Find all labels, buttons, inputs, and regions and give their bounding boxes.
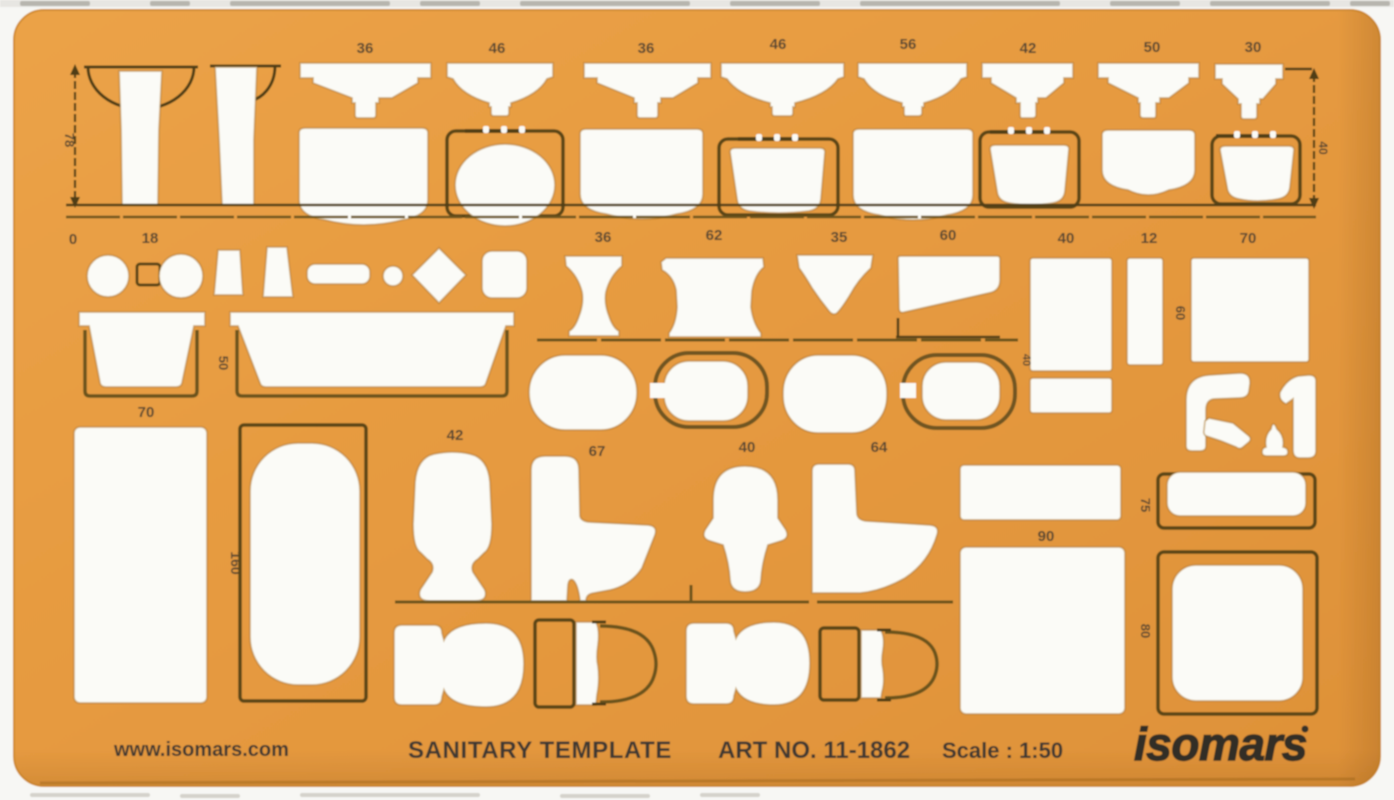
svg-text:www.isomars.com: www.isomars.com [113,739,289,761]
svg-text:62: 62 [706,227,723,244]
svg-text:64: 64 [871,439,888,456]
svg-text:30: 30 [1245,39,1262,56]
svg-text:80: 80 [1138,624,1153,638]
svg-text:46: 46 [489,40,506,57]
svg-text:40: 40 [1020,354,1032,366]
svg-text:18: 18 [142,230,159,247]
svg-text:50: 50 [216,356,231,370]
svg-text:12: 12 [1141,230,1158,247]
svg-text:56: 56 [900,36,917,53]
svg-text:40: 40 [1316,141,1330,155]
svg-text:0: 0 [69,231,77,248]
svg-text:42: 42 [1020,40,1037,57]
svg-text:36: 36 [595,229,612,246]
svg-text:70: 70 [1240,230,1257,247]
svg-text:ART NO. 11-1862: ART NO. 11-1862 [718,737,910,764]
svg-text:50: 50 [1144,39,1161,56]
svg-text:70: 70 [138,404,155,421]
svg-text:42: 42 [447,427,464,444]
svg-text:67: 67 [589,443,606,460]
svg-text:36: 36 [638,40,655,57]
svg-text:46: 46 [770,36,787,53]
svg-text:40: 40 [1058,230,1075,247]
svg-text:75: 75 [1138,498,1153,512]
svg-text:90: 90 [1038,528,1055,545]
svg-text:36: 36 [357,40,374,57]
svg-text:60: 60 [1173,306,1188,320]
svg-text:60: 60 [940,227,957,244]
svg-text:78: 78 [62,133,77,147]
svg-text:40: 40 [739,439,756,456]
svg-text:Scale : 1:50: Scale : 1:50 [942,738,1063,763]
svg-text:SANITARY TEMPLATE: SANITARY TEMPLATE [408,737,672,764]
svg-text:35: 35 [831,229,848,246]
svg-text:isomars: isomars [1134,718,1307,770]
